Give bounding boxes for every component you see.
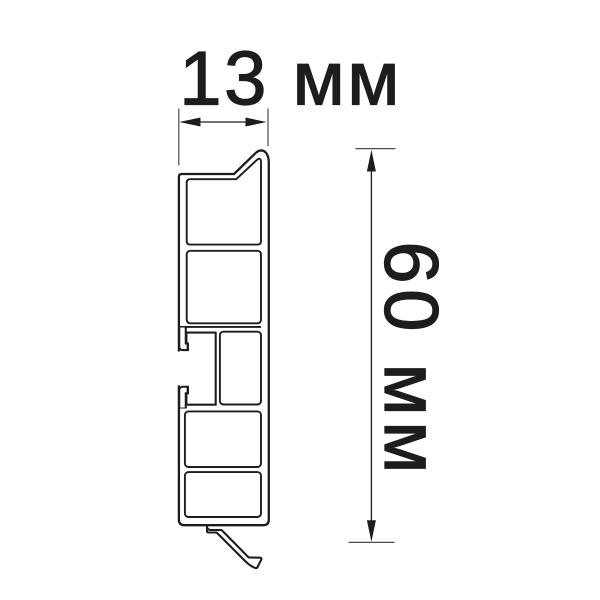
svg-text:60 мм: 60 мм (368, 241, 453, 479)
svg-text:13 мм: 13 мм (179, 37, 402, 122)
